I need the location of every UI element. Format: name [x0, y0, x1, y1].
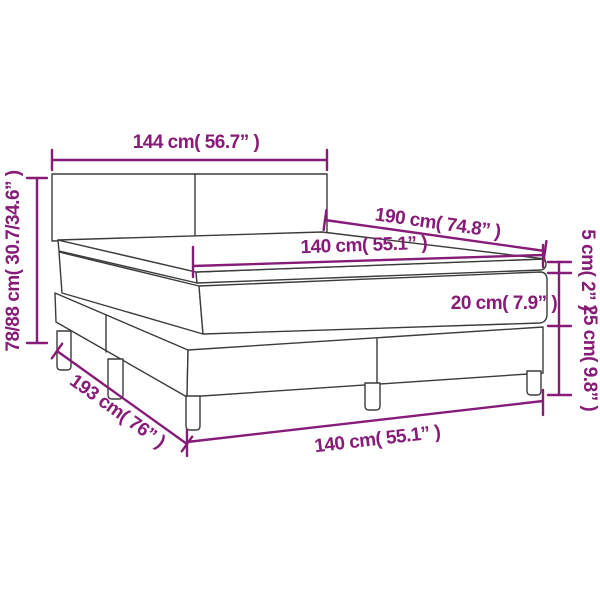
dim-label-base-height: 25 cm( 9.8” ) — [579, 305, 600, 412]
diagram-canvas: 144 cm( 56.7” ) 78/88 cm( 30.7/34.6” ) 1… — [0, 0, 600, 600]
dim-label-mattress-width-bottom: 140 cm( 55.1” ) — [313, 422, 441, 457]
dim-headboard-width: 144 cm( 56.7” ) — [52, 132, 327, 170]
dim-label-mattress-height: 20 cm( 7.9” ) — [451, 293, 558, 314]
dim-label-headboard-width: 144 cm( 56.7” ) — [133, 132, 260, 153]
dim-total-height: 78/88 cm( 30.7/34.6” ) — [3, 170, 47, 351]
leg-front-right — [527, 371, 541, 395]
dim-label-topper-height: 5 cm( 2” ) — [577, 229, 598, 311]
leg-front-corner — [186, 396, 200, 430]
dim-label-total-height: 78/88 cm( 30.7/34.6” ) — [3, 170, 24, 351]
leg-front-middle — [365, 383, 380, 410]
headboard — [52, 174, 327, 241]
dim-label-mattress-width-top: 140 cm( 55.1” ) — [300, 233, 427, 258]
leg-back-left — [57, 331, 71, 370]
bed-dimension-diagram: 144 cm( 56.7” ) 78/88 cm( 30.7/34.6” ) 1… — [0, 0, 600, 600]
